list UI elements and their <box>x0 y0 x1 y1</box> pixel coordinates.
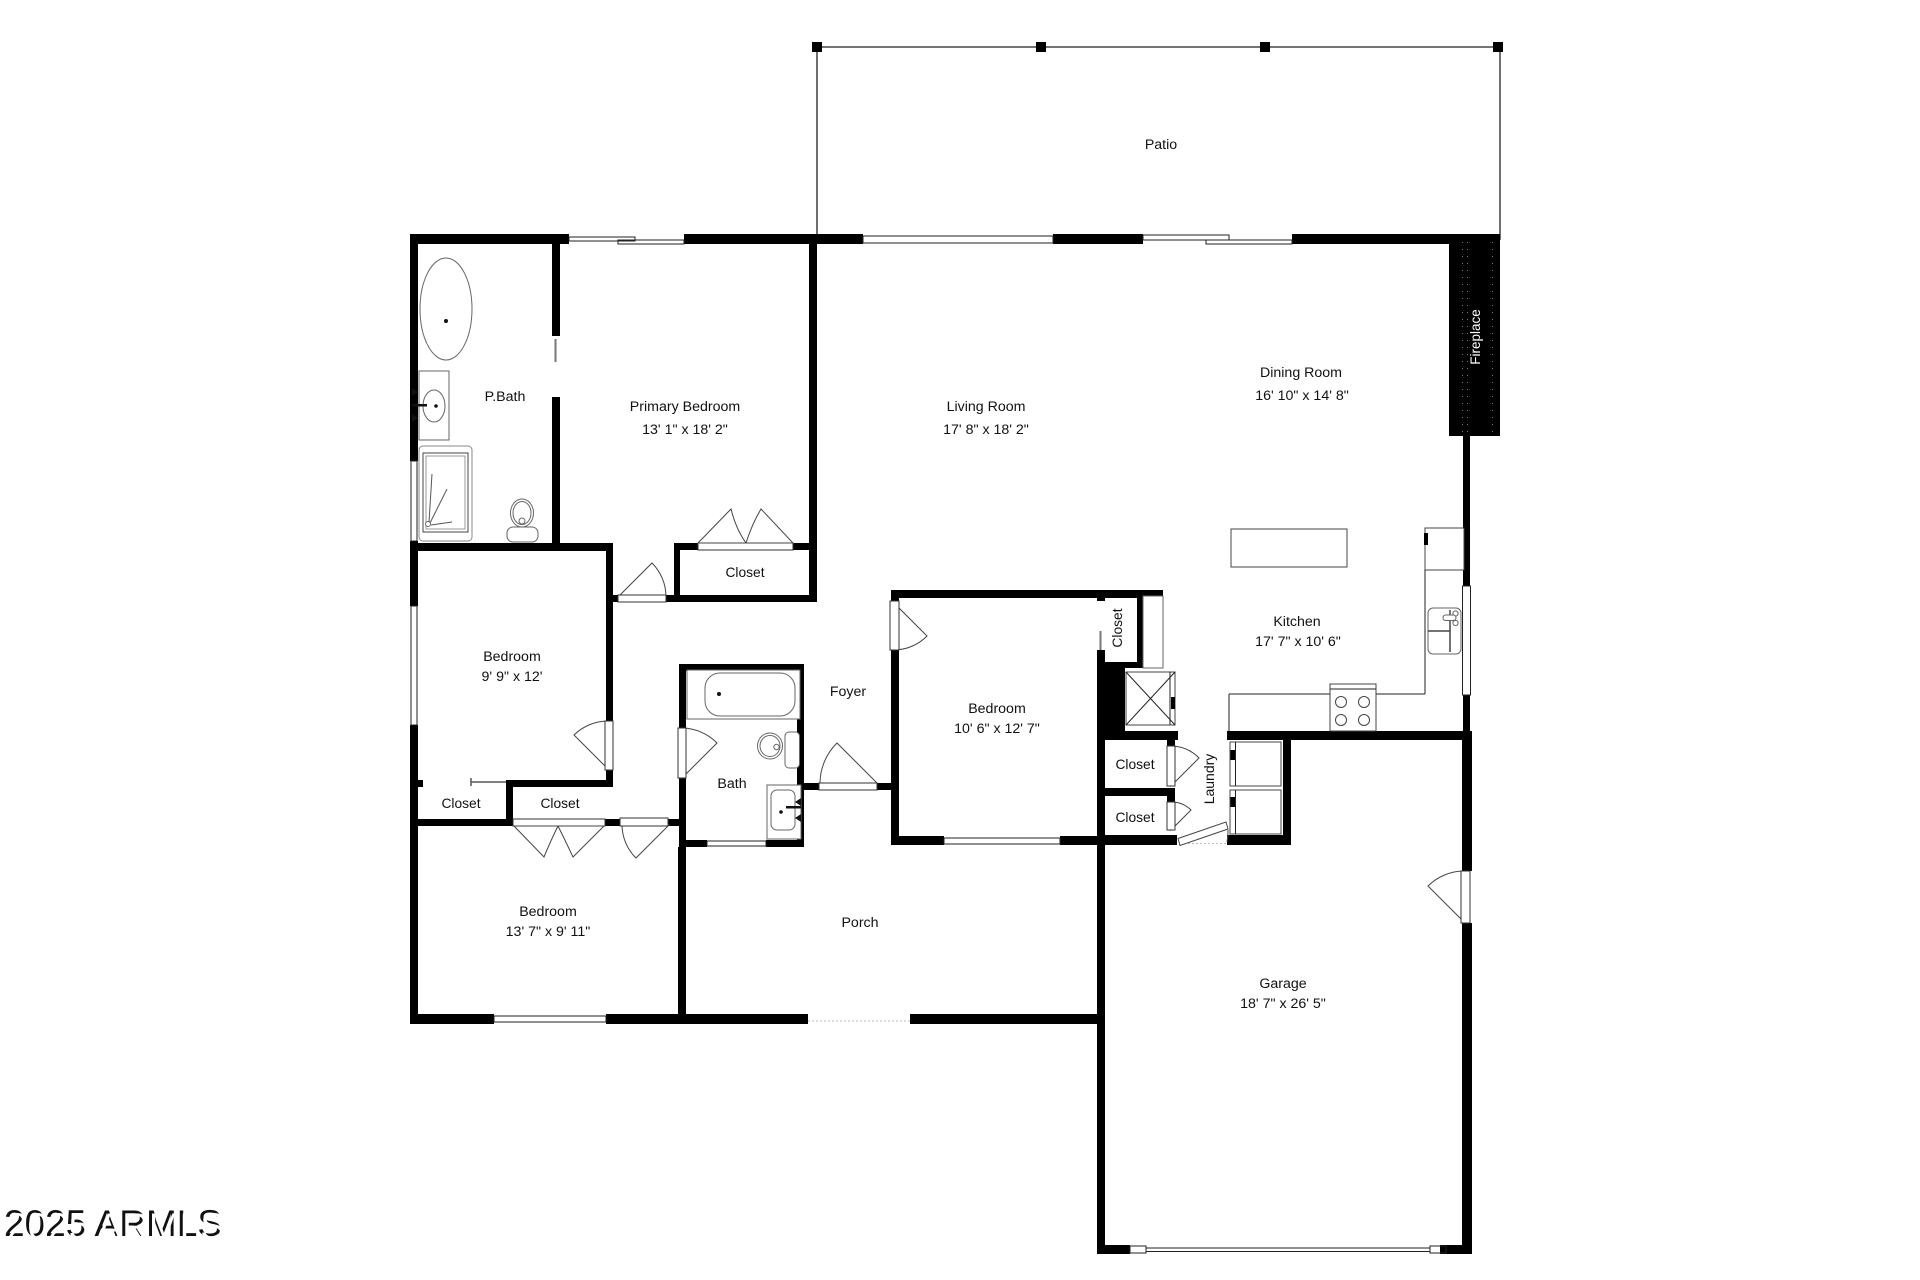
svg-text:2025 ARMLS: 2025 ARMLS <box>7 1206 225 1247</box>
svg-text:Bedroom: Bedroom <box>519 904 577 920</box>
svg-text:Closet: Closet <box>1115 810 1154 825</box>
svg-text:Bedroom: Bedroom <box>483 649 541 665</box>
svg-text:Closet: Closet <box>725 565 764 580</box>
svg-text:Patio: Patio <box>1145 137 1177 153</box>
svg-text:P.Bath: P.Bath <box>485 389 526 405</box>
svg-text:13' 1" x 18' 2": 13' 1" x 18' 2" <box>642 422 728 438</box>
svg-text:Closet: Closet <box>1110 608 1125 647</box>
svg-text:18' 7" x 26' 5": 18' 7" x 26' 5" <box>1240 996 1326 1012</box>
svg-text:Primary Bedroom: Primary Bedroom <box>630 399 740 415</box>
svg-text:10' 6" x 12' 7": 10' 6" x 12' 7" <box>954 721 1040 737</box>
svg-text:Dining Room: Dining Room <box>1260 365 1342 381</box>
svg-text:Closet: Closet <box>441 796 480 811</box>
svg-text:17' 8" x 18' 2": 17' 8" x 18' 2" <box>943 422 1029 438</box>
svg-text:Laundry: Laundry <box>1201 754 1217 805</box>
svg-text:Living Room: Living Room <box>947 399 1026 415</box>
svg-text:Bath: Bath <box>717 776 746 792</box>
svg-text:13' 7" x 9' 11": 13' 7" x 9' 11" <box>506 924 591 940</box>
svg-text:16' 10" x 14' 8": 16' 10" x 14' 8" <box>1255 388 1349 404</box>
svg-text:Closet: Closet <box>540 796 579 811</box>
svg-text:Fireplace: Fireplace <box>1468 309 1483 365</box>
svg-text:9' 9" x 12': 9' 9" x 12' <box>482 669 543 685</box>
svg-text:Garage: Garage <box>1259 976 1306 992</box>
svg-text:Foyer: Foyer <box>830 684 867 700</box>
svg-text:Porch: Porch <box>841 915 878 931</box>
svg-text:17' 7" x 10' 6": 17' 7" x 10' 6" <box>1255 634 1341 650</box>
svg-text:Kitchen: Kitchen <box>1273 614 1320 630</box>
svg-text:Closet: Closet <box>1115 757 1154 772</box>
svg-text:Bedroom: Bedroom <box>968 701 1026 717</box>
